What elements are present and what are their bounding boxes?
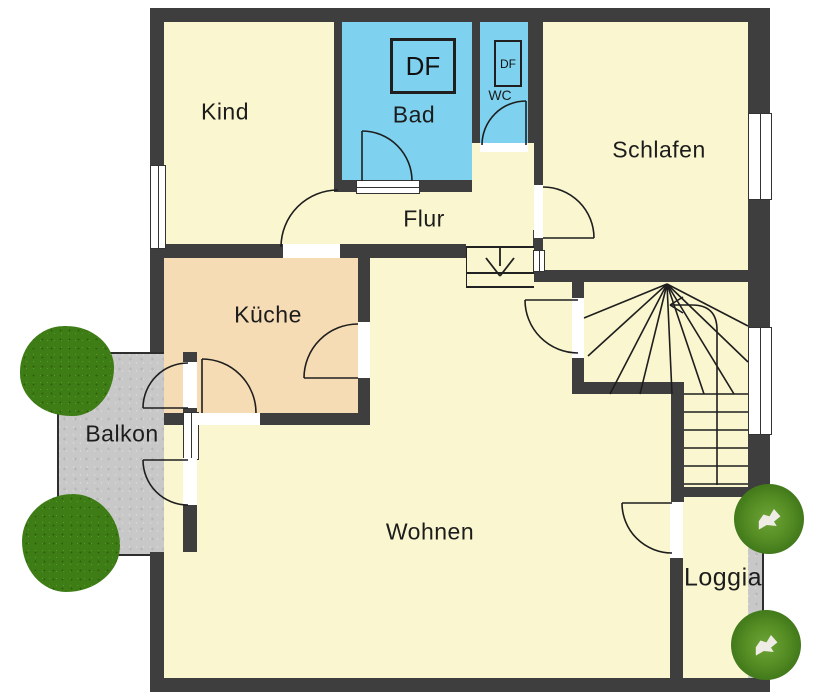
wall-kind-bad (334, 22, 342, 192)
roof-window-label-bad: DF (406, 51, 441, 82)
threshold-kind-door (283, 244, 340, 258)
tree-icon (20, 326, 114, 416)
tree-highlight (754, 505, 785, 532)
roof-window-label-wc: DF (500, 57, 516, 71)
wall-bad-wc (472, 22, 480, 143)
entry-door (466, 246, 534, 288)
label-loggia: Loggia (684, 564, 762, 593)
wall-outer-left-lower (150, 552, 164, 678)
threshold-balkon-lower-door (183, 458, 197, 505)
label-wohnen: Wohnen (386, 519, 474, 546)
threshold-loggia-door (670, 502, 683, 558)
label-bad: Bad (393, 102, 435, 129)
label-balkon: Balkon (85, 421, 158, 448)
wall-outer-bottom (150, 678, 770, 692)
wall-stair-low (671, 394, 684, 502)
threshold-kueche-bottom-door (198, 413, 260, 425)
label-kueche: Küche (234, 302, 302, 329)
threshold-kueche-right-door (358, 322, 370, 378)
label-flur: Flur (403, 206, 445, 233)
window-kind-left (150, 165, 166, 249)
wall-loggia-left (670, 557, 683, 678)
wall-stair-mid (572, 382, 684, 394)
window-balkon (183, 412, 199, 460)
label-wc: WC (488, 87, 511, 103)
window-schlafen-right (748, 113, 772, 200)
tree-icon (731, 610, 801, 680)
tree-icon (22, 494, 120, 592)
threshold-balkon-upper-door (183, 362, 197, 408)
threshold-wc-door (480, 143, 528, 152)
threshold-schlafen-door (534, 185, 543, 238)
window-stair-right (748, 327, 772, 435)
roof-window-badge-wc: DF (494, 40, 522, 87)
tree-highlight (751, 631, 782, 658)
label-kind: Kind (201, 99, 249, 126)
threshold-stair-door (572, 298, 584, 358)
roof-window-badge-bad: DF (390, 38, 456, 94)
threshold-bad-door (356, 180, 420, 194)
wall-outer-top (150, 8, 770, 22)
tree-icon (734, 484, 804, 554)
label-schlafen: Schlafen (612, 137, 706, 164)
floor-plan: DF DF Kind Bad WC Schlafen Flur Küche Ba… (0, 0, 834, 700)
wall-schlafen-bottom (533, 270, 748, 282)
threshold-entry-side (533, 250, 545, 272)
